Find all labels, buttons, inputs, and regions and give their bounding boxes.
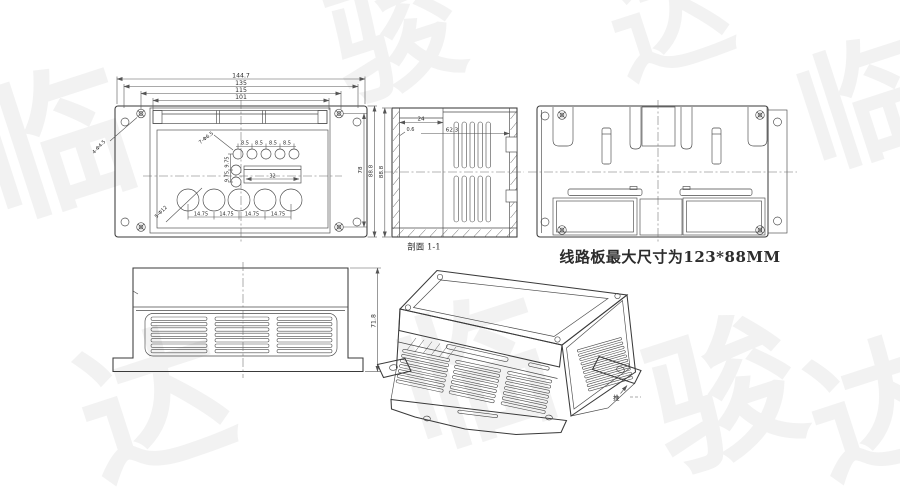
iso-view: 推 [378,271,642,435]
iso-right-louvers [577,337,633,391]
svg-text:14.75: 14.75 [245,211,259,217]
technical-drawing: 32 8.5 8.5 8.5 8.5 [0,0,900,500]
large-holes [177,189,302,211]
hatch-bottom [397,230,514,237]
svg-text:88.8: 88.8 [369,164,375,177]
section-dims: 24 0.6 62.3 88.8 [379,108,510,237]
pcb-note: 线路板最大尺寸为123*88MM [559,248,780,266]
terminal-strip [153,111,327,124]
louver-group-1 [151,317,207,353]
dim-slot-width: 32 [269,174,275,180]
callout-large-holes: 5-Φ12 [154,205,169,220]
iso-left-flange [378,359,412,378]
right-wall-notch [506,190,517,202]
callout-small-holes: 7-Φ6.5 [198,131,215,146]
iso-corner-holes [405,274,620,342]
svg-text:9.75: 9.75 [225,156,231,167]
dim-right-heights: 78 88.8 [343,106,377,237]
svg-text:115: 115 [235,87,247,94]
svg-text:24: 24 [417,117,425,123]
svg-text:0.6: 0.6 [407,127,415,133]
rear-holes [541,111,782,235]
iso-louver-group-2 [449,360,501,403]
push-annotation: 推 [613,386,641,403]
callout-corner-holes: 4-Φ4.5 [91,139,107,155]
vent-slots-upper [454,122,491,168]
iso-base [391,400,567,435]
push-label: 推 [613,393,620,402]
svg-text:78: 78 [358,166,364,174]
svg-text:62.3: 62.3 [446,128,459,134]
side-flange-strip [768,110,787,233]
vent-slots-lower [454,176,491,222]
svg-text:14.75: 14.75 [219,211,233,217]
dim-bottom-pitch: 14.75 14.75 14.75 14.75 [188,204,291,220]
svg-text:9.75: 9.75 [225,171,231,182]
svg-text:101: 101 [235,94,247,101]
drawing-canvas: 临 达 骏 临 达 骏 临 达 [0,0,900,500]
svg-text:71.8: 71.8 [371,314,378,328]
display-slot: 32 [244,166,301,183]
svg-text:144.7: 144.7 [232,73,250,80]
louver-group-2 [215,317,269,353]
iso-lid-front [399,309,562,367]
bottom-openings [553,187,765,236]
din-clip-features [553,107,767,164]
louver-group-3 [277,317,332,353]
svg-text:135: 135 [235,80,247,87]
dim-side-height: 71.8 [350,268,381,372]
section-label: 剖面 1-1 [407,242,440,253]
iso-recess-hatch [407,338,456,359]
iso-louver-group-3 [501,371,552,414]
rear-view [528,100,797,243]
svg-text:8.5: 8.5 [269,141,277,147]
hole-callouts: 7-Φ6.5 4-Φ4.5 5-Φ12 [91,118,233,223]
side-view: 71.8 [113,262,381,378]
front-view: 32 8.5 8.5 8.5 8.5 [91,73,377,244]
iso-louver-group-1 [396,349,450,392]
hatch-right-wall [511,112,517,230]
svg-text:88.8: 88.8 [379,165,385,178]
hatch-left-wall [393,112,399,230]
section-view: 24 0.6 62.3 88.8 剖面 1-1 [379,108,524,253]
svg-text:8.5: 8.5 [241,141,249,147]
svg-text:14.75: 14.75 [194,211,208,217]
right-wall-notch [506,137,517,152]
svg-text:8.5: 8.5 [255,141,263,147]
svg-text:8.5: 8.5 [283,141,291,147]
dim-top-pitch: 8.5 8.5 8.5 8.5 [236,141,296,150]
svg-text:14.75: 14.75 [271,211,285,217]
